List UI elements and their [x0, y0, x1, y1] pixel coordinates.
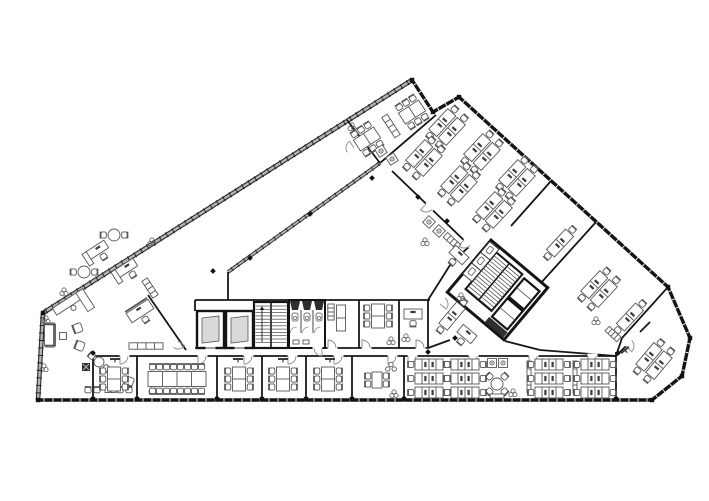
chair-symbol — [85, 387, 92, 393]
deskret-symbol — [111, 258, 142, 286]
chair-symbol — [564, 389, 570, 396]
shelf-symbol — [382, 114, 400, 138]
column-marker — [452, 335, 458, 341]
copier-symbol — [488, 359, 497, 368]
chair-symbol — [364, 313, 370, 320]
chair-symbol — [564, 361, 570, 368]
chair-symbol — [365, 373, 371, 380]
plant-symbol — [387, 337, 395, 345]
deskret-symbol — [82, 240, 113, 268]
pier-marker — [402, 397, 406, 401]
chair-symbol — [574, 389, 580, 396]
wallL-layer — [93, 115, 668, 400]
elevator-icon — [197, 311, 224, 350]
chair-symbol — [269, 384, 275, 391]
chair-symbol — [444, 361, 450, 368]
pier-marker — [650, 398, 654, 402]
chair-symbol — [364, 321, 370, 328]
door-arc — [313, 346, 323, 356]
chair-symbol — [247, 384, 253, 391]
pier-marker — [36, 398, 40, 402]
tv-symbol — [278, 359, 288, 363]
pier-marker — [666, 285, 670, 289]
conf-symbol — [148, 364, 206, 394]
shelf-symbol — [142, 278, 158, 298]
table6v-symbol — [269, 367, 297, 391]
inner-glazed-wall — [228, 162, 380, 272]
pier-marker — [614, 397, 618, 401]
chair-symbol — [408, 361, 414, 368]
stools-symbol — [386, 362, 397, 371]
chair-symbol — [480, 389, 486, 396]
central-core — [197, 300, 325, 350]
bench-desk-symbol — [444, 373, 486, 384]
chair-symbol — [383, 381, 389, 388]
chair-symbol — [408, 375, 414, 382]
pier-marker — [457, 95, 461, 99]
elevator-icon — [226, 311, 253, 350]
chair-symbol — [225, 376, 231, 383]
copier-symbol — [423, 216, 436, 229]
round3-symbol — [100, 229, 127, 241]
bench-desk-symbol — [528, 373, 570, 384]
chair-symbol — [177, 388, 184, 394]
chair-symbol — [100, 368, 106, 375]
chair-symbol — [386, 305, 392, 312]
pier-marker — [41, 311, 45, 315]
door-arc — [120, 354, 130, 364]
chair-symbol — [314, 384, 320, 391]
pier-marker — [431, 110, 435, 114]
chair-symbol — [177, 364, 184, 370]
desksingle-symbol — [404, 309, 422, 327]
door-arc — [416, 340, 426, 350]
tall-symbol — [337, 305, 346, 331]
bench-desk-symbol — [528, 387, 570, 398]
bench-desk-symbol — [528, 359, 570, 370]
pier-marker — [304, 397, 308, 401]
plant-symbol — [421, 238, 429, 246]
chair-symbol — [528, 375, 534, 382]
pier-marker — [350, 397, 354, 401]
pier-marker — [215, 397, 219, 401]
chair-symbol — [100, 232, 106, 239]
pier-marker — [680, 374, 684, 378]
chair-symbol — [70, 269, 76, 276]
cluster-symbol — [576, 265, 622, 312]
bench-desk-symbol — [444, 359, 486, 370]
bench-desk-symbol — [574, 359, 616, 370]
door-arc — [244, 354, 254, 364]
chair-symbol — [156, 364, 163, 370]
chair-symbol — [574, 361, 580, 368]
chair-symbol — [225, 368, 231, 375]
round3-symbol — [70, 266, 97, 278]
armchair-symbol — [74, 340, 85, 352]
chair-symbol — [291, 368, 297, 375]
chair-symbol — [410, 321, 417, 327]
stair-icon — [254, 302, 288, 348]
plant-symbol — [390, 390, 398, 398]
chair-symbol — [163, 388, 170, 394]
coffee-symbol — [60, 333, 67, 340]
tv-symbol — [325, 359, 335, 363]
bench-desk-symbol — [574, 387, 616, 398]
chair-symbol — [163, 364, 170, 370]
chair-symbol — [191, 364, 198, 370]
chair-symbol — [480, 361, 486, 368]
chair-symbol — [386, 321, 392, 328]
chair-symbol — [444, 389, 450, 396]
pier-marker — [135, 397, 139, 401]
door-arc — [362, 340, 372, 350]
chair-symbol — [122, 376, 128, 383]
copier-symbol — [433, 225, 446, 238]
table6v-symbol — [225, 367, 253, 391]
pier-marker — [91, 397, 95, 401]
chair-symbol — [122, 232, 128, 239]
chair-symbol — [364, 305, 370, 312]
plant-symbol — [60, 288, 68, 296]
chair-symbol — [269, 376, 275, 383]
chair-symbol — [386, 313, 392, 320]
chair-symbol — [184, 388, 191, 394]
chair-symbol — [314, 376, 320, 383]
chair-symbol — [610, 361, 616, 368]
door-arc — [342, 141, 356, 155]
pier-marker — [260, 397, 264, 401]
table6v-symbol — [364, 304, 392, 328]
chair-symbol — [336, 384, 342, 391]
chair-symbol — [408, 389, 414, 396]
chair-symbol — [336, 368, 342, 375]
chair-symbol — [247, 368, 253, 375]
bench-desk-symbol — [574, 373, 616, 384]
chair-symbol — [564, 375, 570, 382]
chair-symbol — [198, 364, 205, 370]
chair-symbol — [610, 375, 616, 382]
chair-symbol — [149, 388, 156, 394]
floor-plan — [0, 0, 709, 501]
column-marker — [210, 268, 216, 274]
chair-symbol — [100, 384, 106, 391]
chair-symbol — [198, 388, 205, 394]
copier-symbol — [499, 359, 508, 368]
chair-symbol — [122, 384, 128, 391]
chair-symbol — [383, 373, 389, 380]
chair-symbol — [528, 389, 534, 396]
chair-symbol — [149, 364, 156, 370]
pier-marker — [410, 78, 414, 82]
toilet-icon — [316, 313, 322, 321]
chair-symbol — [191, 388, 198, 394]
chair-symbol — [225, 384, 231, 391]
door-arc — [438, 295, 452, 309]
plant-symbol — [402, 334, 410, 342]
door-arc — [288, 354, 298, 364]
chair-symbol — [336, 376, 342, 383]
floor-plan-page — [0, 0, 709, 501]
chair-symbol — [122, 368, 128, 375]
shelf-symbol — [129, 343, 163, 349]
copier-symbol — [386, 153, 398, 165]
chair-symbol — [170, 388, 177, 394]
toilet-icon — [292, 313, 298, 321]
small4-symbol — [365, 372, 389, 388]
chair-symbol — [247, 376, 253, 383]
chair-symbol — [365, 381, 371, 388]
door-arc — [198, 354, 208, 364]
armchair-symbol — [72, 322, 83, 334]
chair-symbol — [291, 384, 297, 391]
chair-symbol — [314, 368, 320, 375]
chair-symbol — [269, 368, 275, 375]
recep-symbol — [52, 289, 94, 327]
table6v-symbol — [314, 367, 342, 391]
chair-symbol — [480, 375, 486, 382]
pier-marker — [688, 336, 692, 340]
chair-symbol — [444, 375, 450, 382]
chair-symbol — [170, 364, 177, 370]
chair-symbol — [184, 364, 191, 370]
chair-symbol — [156, 388, 163, 394]
chair-symbol — [291, 376, 297, 383]
cluster-symbol — [631, 337, 677, 385]
column-marker — [425, 349, 431, 355]
table6v-symbol — [100, 367, 128, 391]
cluster-symbol — [542, 224, 579, 262]
column-marker — [369, 175, 375, 181]
desksingle-symbol — [444, 245, 469, 270]
chair-symbol — [92, 269, 98, 276]
tv-symbol — [110, 359, 120, 363]
chair-symbol — [528, 361, 534, 368]
copier-symbol — [375, 145, 387, 157]
door-arc — [420, 202, 434, 216]
wc-block — [289, 300, 325, 348]
toilet-icon — [304, 313, 310, 321]
bench-desk-symbol — [444, 387, 486, 398]
shelf-symbol — [328, 304, 334, 320]
chair-symbol — [610, 389, 616, 396]
door-arc — [328, 340, 338, 350]
tv-symbol — [233, 359, 243, 363]
benchseat-symbol — [490, 394, 504, 398]
plant-symbol — [509, 389, 517, 397]
plant-symbol — [592, 317, 600, 325]
chair-symbol — [574, 375, 580, 382]
sofa-symbol — [45, 323, 56, 347]
chair-symbol — [100, 376, 106, 383]
darkbox-symbol — [82, 363, 90, 371]
